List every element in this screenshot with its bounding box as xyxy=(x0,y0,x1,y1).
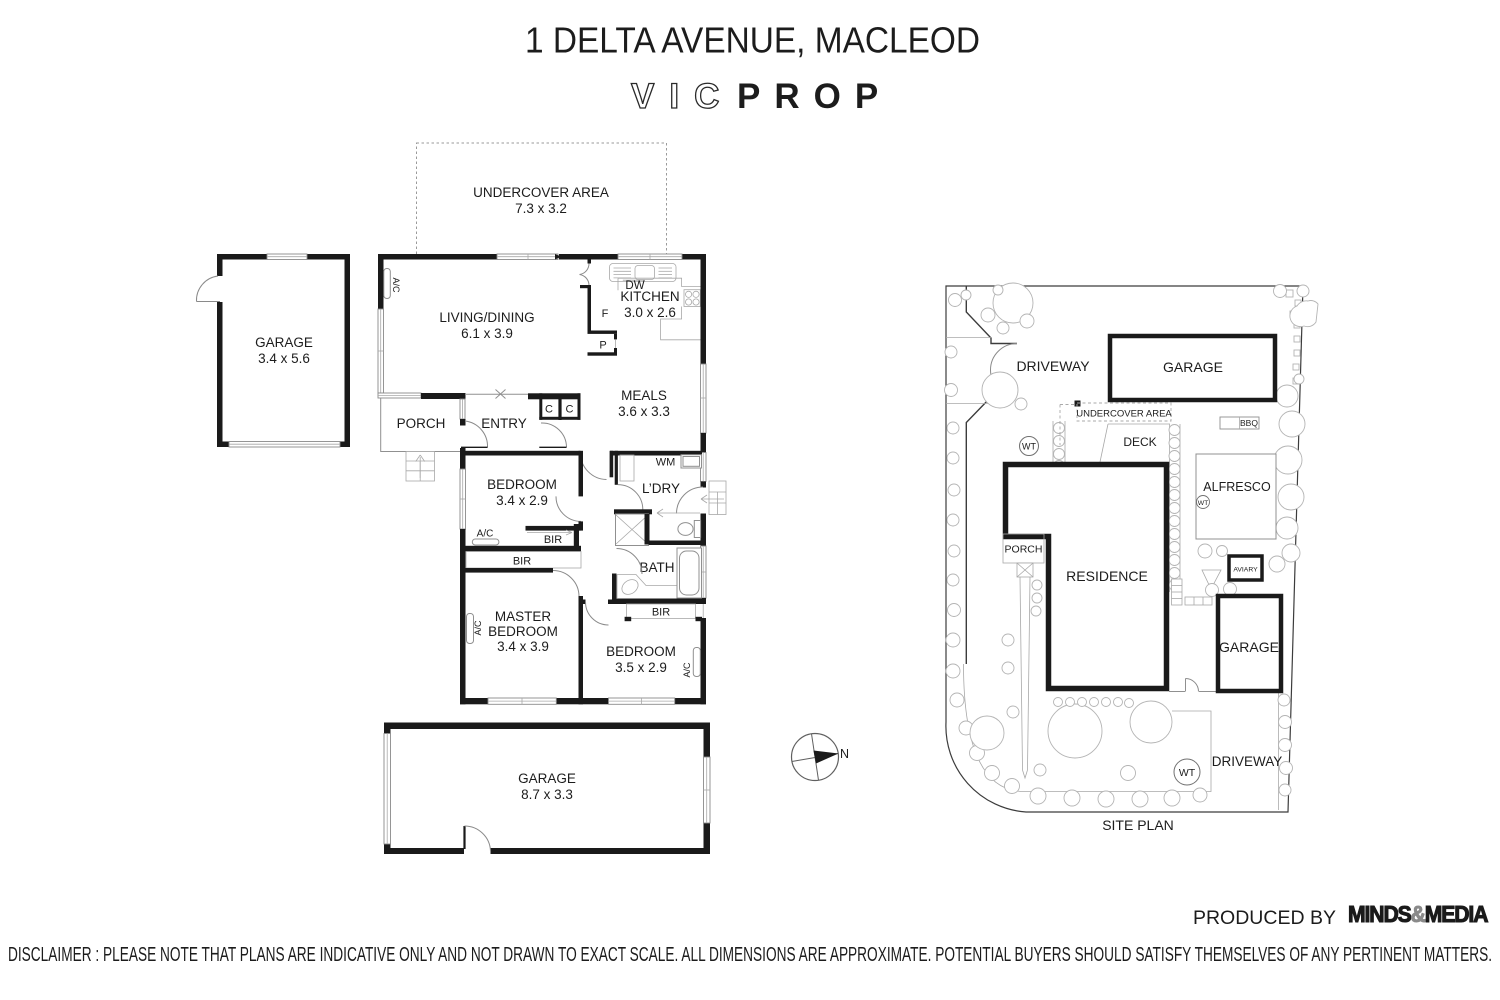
svg-text:MINDS&MEDIA: MINDS&MEDIA xyxy=(1348,901,1489,927)
svg-text:PORCH: PORCH xyxy=(397,416,446,431)
svg-text:8.7 x 3.3: 8.7 x 3.3 xyxy=(521,787,573,802)
svg-text:AVIARY: AVIARY xyxy=(1233,567,1258,574)
svg-text:SITE PLAN: SITE PLAN xyxy=(1102,817,1174,833)
svg-text:VIC: VIC xyxy=(631,77,734,116)
svg-text:DRIVEWAY: DRIVEWAY xyxy=(1016,358,1090,374)
svg-text:DECK: DECK xyxy=(1123,435,1156,449)
svg-text:ENTRY: ENTRY xyxy=(481,416,527,431)
svg-text:PROP: PROP xyxy=(737,77,892,116)
svg-text:L’DRY: L’DRY xyxy=(642,481,680,496)
svg-text:UNDERCOVER AREA: UNDERCOVER AREA xyxy=(1076,409,1172,420)
svg-text:BIR: BIR xyxy=(652,607,670,619)
svg-text:3.5 x 2.9: 3.5 x 2.9 xyxy=(615,660,667,675)
svg-text:BEDROOM: BEDROOM xyxy=(606,644,676,659)
svg-text:A/C: A/C xyxy=(473,620,483,636)
svg-text:3.4 x 2.9: 3.4 x 2.9 xyxy=(496,493,548,508)
svg-text:C: C xyxy=(566,404,574,416)
svg-text:3.4 x 3.9: 3.4 x 3.9 xyxy=(497,639,549,654)
svg-text:A/C: A/C xyxy=(682,662,692,678)
svg-text:WT: WT xyxy=(1022,442,1036,452)
svg-text:RESIDENCE: RESIDENCE xyxy=(1066,568,1148,584)
svg-text:DRIVEWAY: DRIVEWAY xyxy=(1212,754,1283,769)
svg-text:A/C: A/C xyxy=(391,278,401,294)
svg-text:KITCHEN: KITCHEN xyxy=(620,289,679,304)
svg-text:N: N xyxy=(840,747,849,761)
svg-text:MEALS: MEALS xyxy=(621,388,667,403)
svg-text:7.3 x 3.2: 7.3 x 3.2 xyxy=(515,201,567,216)
svg-text:3.0 x 2.6: 3.0 x 2.6 xyxy=(624,305,676,320)
svg-text:UNDERCOVER AREA: UNDERCOVER AREA xyxy=(473,185,609,200)
svg-text:PORCH: PORCH xyxy=(1005,544,1043,556)
svg-text:PRODUCED BY: PRODUCED BY xyxy=(1193,907,1336,929)
svg-text:GARAGE: GARAGE xyxy=(1163,359,1223,375)
svg-text:BATH: BATH xyxy=(639,560,674,575)
svg-text:F: F xyxy=(602,308,609,320)
svg-text:A/C: A/C xyxy=(477,529,494,540)
svg-text:WT: WT xyxy=(1198,500,1209,507)
svg-text:3.4 x 5.6: 3.4 x 5.6 xyxy=(258,351,310,366)
svg-text:WM: WM xyxy=(656,457,676,469)
svg-text:ALFRESCO: ALFRESCO xyxy=(1203,480,1271,494)
svg-text:GARAGE: GARAGE xyxy=(1219,639,1279,655)
svg-text:DISCLAIMER : PLEASE NOTE THAT: DISCLAIMER : PLEASE NOTE THAT PLANS ARE … xyxy=(8,944,1492,966)
svg-text:BIR: BIR xyxy=(513,556,531,568)
svg-text:WT: WT xyxy=(1179,767,1196,779)
svg-text:1 DELTA AVENUE, MACLEOD: 1 DELTA AVENUE, MACLEOD xyxy=(525,20,980,61)
svg-text:MASTER: MASTER xyxy=(495,609,552,624)
svg-text:BBQ: BBQ xyxy=(1240,418,1258,428)
svg-text:C: C xyxy=(545,404,553,416)
svg-text:BEDROOM: BEDROOM xyxy=(488,624,558,639)
svg-text:3.6 x 3.3: 3.6 x 3.3 xyxy=(618,404,670,419)
svg-text:P: P xyxy=(599,340,606,352)
svg-text:GARAGE: GARAGE xyxy=(518,771,576,786)
svg-text:LIVING/DINING: LIVING/DINING xyxy=(439,310,534,325)
svg-text:6.1 x 3.9: 6.1 x 3.9 xyxy=(461,326,513,341)
svg-text:BIR: BIR xyxy=(544,534,562,546)
svg-text:GARAGE: GARAGE xyxy=(255,335,313,350)
svg-text:BEDROOM: BEDROOM xyxy=(487,477,557,492)
